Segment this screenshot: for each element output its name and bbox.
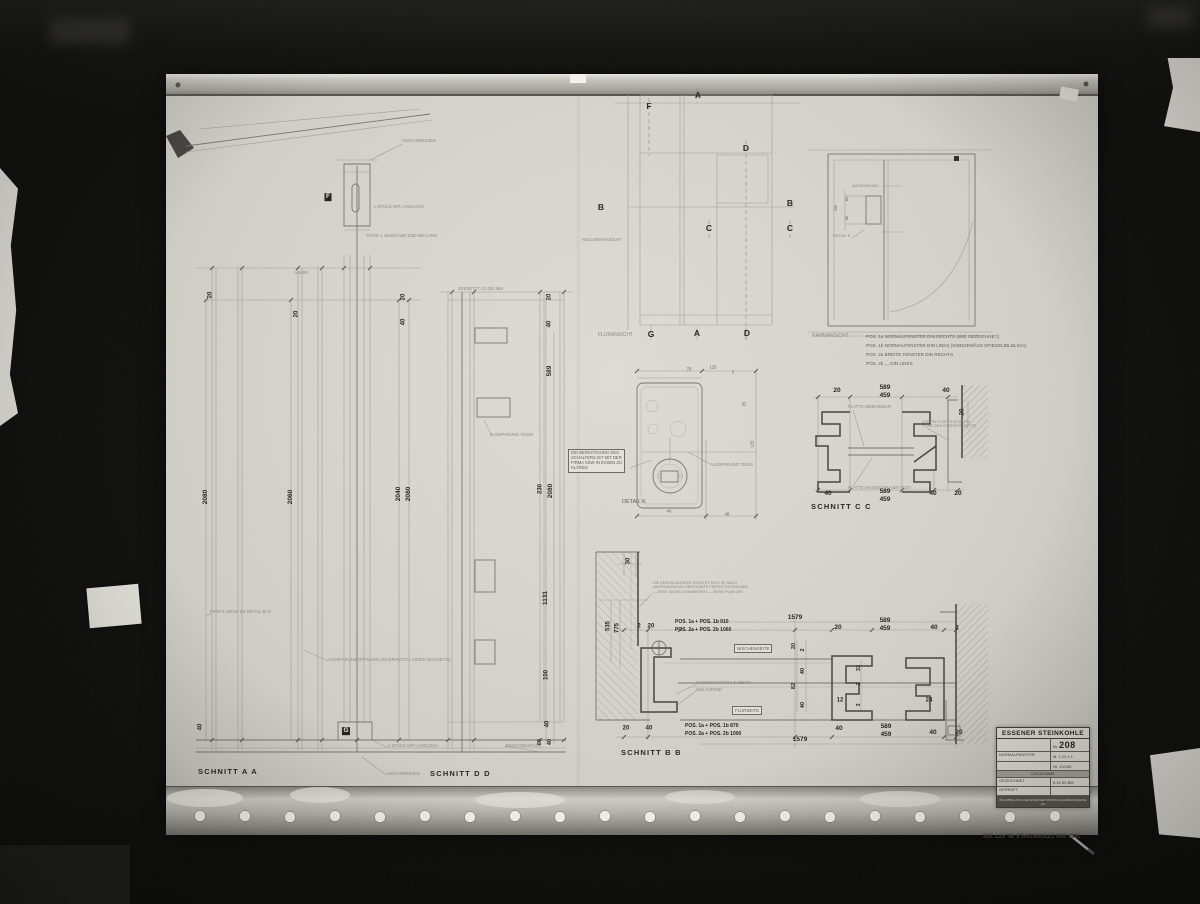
annotation-label: VERSETZT CA 300 MM <box>458 287 503 292</box>
dimension-label: 20 <box>833 387 840 395</box>
section-letter: D <box>743 143 749 153</box>
annotation-label: 25 <box>743 402 748 407</box>
annotation-label: PROFIL SIEHE ZU DETAIL 45 G <box>210 610 271 615</box>
dimension-label: POS. 2a + POS. 2b 1060 <box>675 628 731 634</box>
annotation-label: L-STÜCK MIT LANGLOCH <box>388 744 438 749</box>
dimension-label: 40 <box>835 725 842 733</box>
dimension-label: 20 <box>623 725 630 732</box>
title-block-ref: Nr. 20/158 <box>1051 763 1089 770</box>
annotation-label: 60 <box>845 216 849 220</box>
dimension-label: 1579 <box>793 736 807 744</box>
dimension-label: 2080 <box>202 490 210 504</box>
annotation-label: 120 <box>751 441 756 448</box>
marker-f: F <box>325 193 332 201</box>
foil-strip <box>166 786 1098 835</box>
annotation-label: POS. 2b „ „ DIN LINKS <box>866 361 913 366</box>
dimension-label: 20 <box>791 643 797 649</box>
annotation-label: 125 <box>710 366 717 371</box>
dimension-label: 40 <box>400 319 407 326</box>
note-anschlag: DIE ANSCHLAGHÖHE RICHTET SICH JE NACH AN… <box>653 581 748 594</box>
dimension-label: 2080 <box>405 487 413 501</box>
dimension-label: 20 <box>207 292 214 299</box>
dimension-label: 82 <box>791 683 797 689</box>
dimension-label: 20 <box>959 409 966 416</box>
dimension-label: 40 <box>800 702 806 708</box>
photo-of-technical-drawing: SCHNITT A ASCHNITT D DSCHNITT B BSCHNITT… <box>0 0 1200 904</box>
dimension-label: 40 <box>544 721 551 728</box>
schnitt-b-b-title: SCHNITT B B <box>621 749 682 758</box>
dimension-label: 40 <box>197 724 204 731</box>
dimension-label: 30 <box>625 558 632 565</box>
marker-g: G <box>342 727 350 735</box>
drawing-sheet <box>166 76 1098 834</box>
title-block-drawn-value: 6.10.53 BM <box>1051 779 1089 786</box>
annotation-label: POS. 1a NORMALFENSTER DIN RECHTS (WIE GE… <box>866 334 999 339</box>
section-letter: G <box>648 329 655 339</box>
dimension-label: 589 <box>546 366 554 377</box>
section-letter: B <box>598 202 604 212</box>
title-block-number: Nr.208 <box>1051 739 1089 751</box>
annotation-label: L-STÜCK MIT LANGLOCH <box>374 205 424 210</box>
annotation-label: UMLAUFEND <box>696 688 722 693</box>
title-block-empty <box>997 761 1051 771</box>
dimension-label: 20 <box>954 490 961 498</box>
dimension-label: 40 <box>547 739 553 745</box>
dimension-label: 40 <box>824 490 831 498</box>
dimension-label: 20 <box>400 294 407 301</box>
annotation-label: GUMMIDICHTUNG 5-SEITIG <box>696 681 751 686</box>
annotation-label: AUSSPARUNG ÖFFNUNG UNVERPUTZT LASSEN (BA… <box>328 658 450 663</box>
dimension-label: 3 <box>856 703 862 706</box>
annotation-label: 40 <box>667 510 672 515</box>
dimension-label: 589 <box>881 723 892 731</box>
annotation-label: AUSSPARUNG 75/150 <box>710 463 753 468</box>
edge-stamp: 7856 868 STEINKOHLE BLATT 208 <box>983 830 1081 837</box>
annotation-label: ANKER <box>294 271 308 276</box>
dimension-label: 40 <box>546 321 553 328</box>
dimension-label: 2080 <box>547 484 555 498</box>
section-letter: F <box>646 101 651 111</box>
dimension-label: POS. 1a + POS. 1b 910 <box>675 620 729 626</box>
section-letter: A <box>694 328 700 338</box>
torn-paper <box>86 584 141 628</box>
dimension-label: POS. 2a + POS. 2b 1000 <box>685 732 741 738</box>
dimension-label: POS. 1a + POS. 1b 870 <box>685 724 739 730</box>
clamp-clip <box>570 74 586 83</box>
dimension-label: 535 <box>605 621 612 631</box>
photo-corner-shadow <box>0 845 130 904</box>
dimension-label: 2 <box>856 682 862 685</box>
dimension-label: 2 <box>637 623 640 630</box>
annotation-label: DETAIL K <box>833 234 850 239</box>
title-block-footer: BAUABTEILUNG DER ESSENER STEINKOHLENBERG… <box>997 796 1089 807</box>
section-letter: C <box>787 223 793 233</box>
dimension-label: 589 <box>880 488 891 496</box>
annotation-label: ASBEST-PLATTE 20 MM IN HÖHE DES KÖRPERS … <box>922 420 976 429</box>
dimension-label: 2040 <box>395 487 403 501</box>
dimension-label: 589 <box>880 617 891 625</box>
dimension-label: 100 <box>543 670 550 680</box>
dimension-label: 589 <box>880 384 891 392</box>
dimension-label: 1131 <box>542 591 550 605</box>
annotation-label: POS. 2a BREITE FENSTER DIN RECHTS <box>866 352 953 357</box>
dimension-label: 12 <box>837 697 844 704</box>
fluransicht-label: FLURANSICHT <box>598 333 633 339</box>
schnitt-d-d-title: SCHNITT D D <box>430 770 491 779</box>
title-block-checked-value <box>1051 790 1089 792</box>
dimension-label: 20 <box>546 294 553 301</box>
annotation-label: 40 <box>725 513 730 518</box>
dimension-label: 459 <box>880 392 891 400</box>
dimension-label: 40 <box>930 624 937 632</box>
dimension-label: 1579 <box>788 614 802 622</box>
dimension-label: 40 <box>929 490 936 498</box>
title-block-empty <box>997 738 1051 752</box>
annotation-label: POS. 1b NORMALFENSTER DIN LINKS (SINNGEM… <box>866 343 1026 348</box>
detail-k-label: DETAIL K <box>622 499 646 505</box>
dimension-label: 20 <box>293 311 300 318</box>
annotation-label: 200 <box>834 205 838 211</box>
dimension-label: 24 <box>926 697 933 704</box>
dimension-label: 40 <box>800 668 806 674</box>
note-befestigung: DIE BEFESTIGUNG DES SCHALTERS IST MIT DE… <box>568 449 625 473</box>
section-letter: A <box>695 90 701 100</box>
schnitt-c-c-title: SCHNITT C C <box>811 503 872 512</box>
dimension-label: 2060 <box>287 490 295 504</box>
dimension-label: 40 <box>646 725 653 732</box>
annotation-label: 2 <box>732 371 734 376</box>
dimension-label: 60 <box>537 739 543 745</box>
dimension-label: 2 <box>955 625 958 632</box>
dimension-label: 40 <box>942 387 949 395</box>
annotation-label: ANSCHWEISSEN <box>402 139 436 144</box>
annotation-label: 60 <box>845 197 849 201</box>
annotation-label: NISCHENSEITE <box>734 644 772 653</box>
section-letter: C <box>706 223 712 233</box>
dimension-label: 459 <box>880 496 891 504</box>
dimension-label: 33 <box>856 665 862 671</box>
photo-smudge <box>1148 6 1192 28</box>
annotation-label: FLURSEITE <box>732 706 762 715</box>
section-letter: D <box>744 328 750 338</box>
dimension-label: 40 <box>929 729 936 737</box>
dimension-label: 775 <box>614 623 621 633</box>
annotation-label: AUSSPARUNG 75/150 <box>490 433 533 438</box>
annotation-label: 75 <box>687 368 692 373</box>
clamp-bar <box>166 74 1098 96</box>
section-letter: B <box>787 198 793 208</box>
annotation-label: PLATTE ABNEHMBAR <box>848 405 891 410</box>
dimension-label: 230 <box>537 484 544 494</box>
dimension-label: 20 <box>955 729 962 737</box>
annotation-label: ANSCHWEISSEN <box>386 772 420 777</box>
title-block-scale: M. 1:10 1:1 <box>1051 753 1089 760</box>
dimension-label: 20 <box>834 624 841 632</box>
rahmansicht-label: RAHMANSICHT <box>812 334 849 340</box>
photo-smudge <box>50 18 130 44</box>
title-block-checked-label: GEPRÜFT <box>997 786 1051 796</box>
dimension-label: 459 <box>880 625 891 633</box>
dimension-label: 2 <box>800 648 806 651</box>
nischenansicht-label: NISCHENANSICHT <box>582 237 622 242</box>
annotation-label: AUSSPARUNG <box>852 184 878 188</box>
title-block: ESSENER STEINKOHLE Nr.208 NORMALFENSTER … <box>996 727 1090 808</box>
dimension-label: 459 <box>881 731 892 739</box>
dimension-label: 20 <box>648 623 655 630</box>
annotation-label: STAHL-L 45/45/4 MM 1350 MM LANG <box>366 234 437 239</box>
schnitt-a-a-title: SCHNITT A A <box>198 768 258 777</box>
